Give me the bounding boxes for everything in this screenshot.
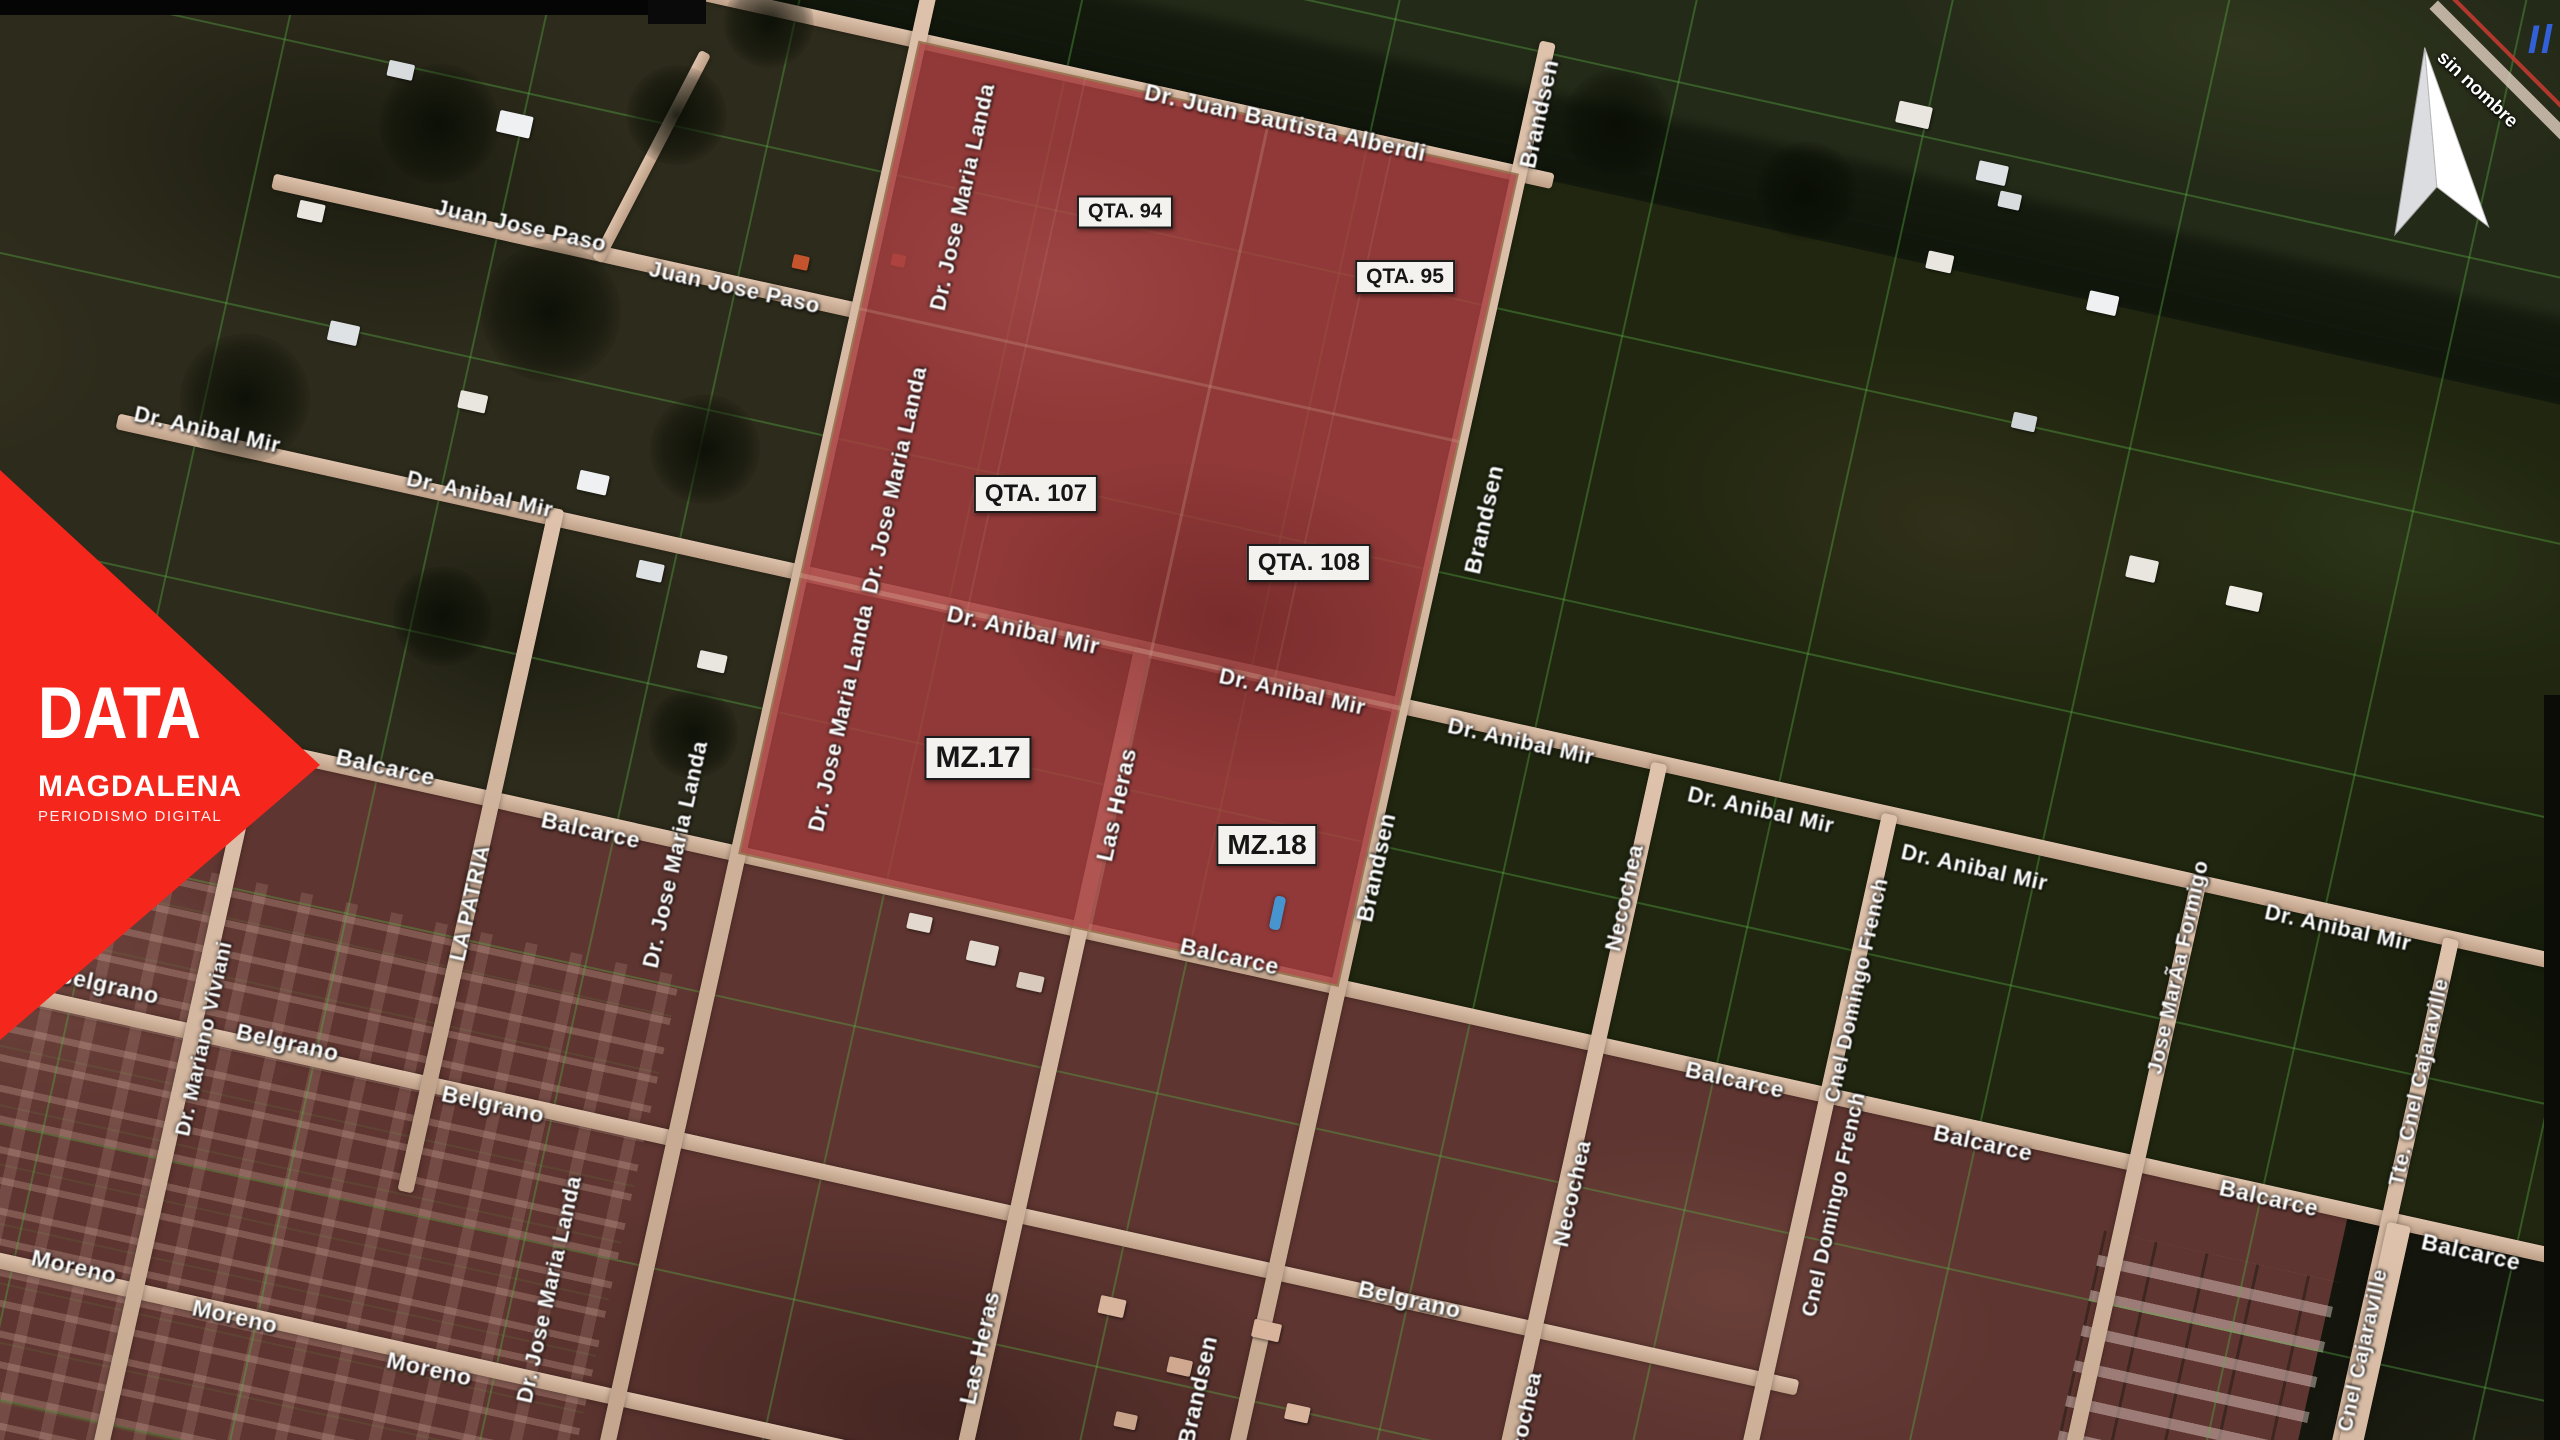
right-black-strip <box>2544 695 2560 1440</box>
parcel-label-mz-17: MZ.17 <box>924 736 1031 780</box>
parcel-label-qta-94: QTA. 94 <box>1077 196 1173 229</box>
north-arrow-icon <box>2377 41 2494 244</box>
map-canvas: Dr. Juan Bautista AlberdiJuan Jose PasoJ… <box>0 0 2560 1440</box>
logo-subtitle: MAGDALENA <box>38 770 242 804</box>
corner-watermark: Il <box>2528 18 2554 63</box>
blue-marker <box>1269 895 1287 931</box>
top-black-nub <box>648 0 706 24</box>
parcel-label-qta-107: QTA. 107 <box>974 475 1098 513</box>
parcel-label-mz-18: MZ.18 <box>1216 824 1317 866</box>
parcel-label-qta-95: QTA. 95 <box>1355 260 1455 294</box>
logo-title: DATA <box>38 672 201 756</box>
top-black-bar <box>0 0 648 15</box>
parcel-label-qta-108: QTA. 108 <box>1247 544 1371 582</box>
annotation-overlay: QTA. 94QTA. 95QTA. 107QTA. 108MZ.17MZ.18… <box>0 0 2560 1440</box>
logo-tagline: PERIODISMO DIGITAL <box>38 808 222 825</box>
data-magdalena-logo: DATA MAGDALENA PERIODISMO DIGITAL <box>0 0 340 1440</box>
